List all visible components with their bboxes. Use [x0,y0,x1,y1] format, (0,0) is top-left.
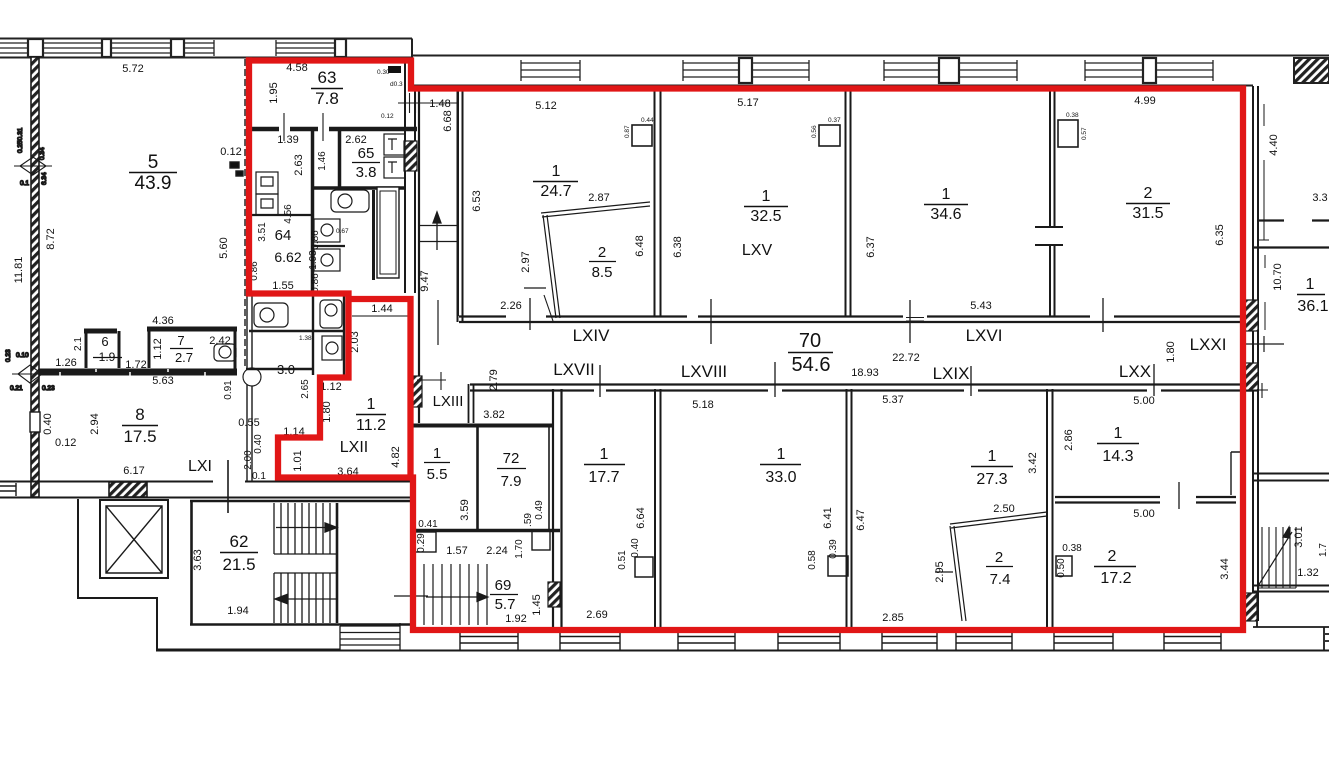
svg-text:5.00: 5.00 [1133,395,1154,407]
svg-text:0.21: 0.21 [10,385,23,392]
svg-text:3.44: 3.44 [1219,558,1231,579]
svg-text:24.7: 24.7 [540,183,571,200]
svg-text:1.80: 1.80 [1165,341,1177,362]
svg-text:4.82: 4.82 [390,446,402,467]
svg-text:4.40: 4.40 [1268,134,1280,155]
svg-text:14.3: 14.3 [1102,448,1133,465]
svg-text:2: 2 [1144,185,1153,202]
svg-text:7.8: 7.8 [315,89,339,108]
svg-text:2.85: 2.85 [882,612,903,624]
svg-text:1.55: 1.55 [272,280,293,292]
svg-text:0.67: 0.67 [336,228,349,235]
svg-text:1.72: 1.72 [125,359,146,371]
svg-text:0.250.31: 0.250.31 [17,127,24,153]
svg-text:.59: .59 [523,513,534,527]
svg-text:34.6: 34.6 [930,206,961,223]
svg-text:6.62: 6.62 [274,249,301,265]
svg-text:6.37: 6.37 [865,236,877,257]
svg-text:4.56: 4.56 [283,204,294,224]
svg-text:1: 1 [433,445,441,462]
svg-text:5.00: 5.00 [1133,508,1154,520]
svg-text:63: 63 [318,68,337,87]
svg-text:0.91: 0.91 [223,380,234,400]
svg-text:70: 70 [799,330,821,352]
svg-text:2.42: 2.42 [209,335,230,347]
svg-text:3.82: 3.82 [483,409,504,421]
svg-text:4.58: 4.58 [286,62,307,74]
svg-text:6.68: 6.68 [442,110,454,131]
svg-text:3.8: 3.8 [356,164,377,181]
svg-text:65: 65 [358,145,375,162]
svg-text:7: 7 [177,333,184,348]
svg-text:0.38: 0.38 [1066,112,1079,119]
svg-text:2: 2 [598,244,606,261]
svg-text:6.53: 6.53 [471,190,483,211]
svg-text:0.86: 0.86 [310,273,321,293]
svg-text:1.48: 1.48 [429,98,450,110]
svg-text:6.64: 6.64 [635,507,647,528]
svg-text:0.87: 0.87 [624,125,631,138]
svg-text:LXX: LXX [1119,362,1151,381]
svg-text:0.44: 0.44 [641,117,654,124]
svg-text:2.87: 2.87 [588,192,609,204]
svg-text:5.12: 5.12 [535,100,556,112]
svg-text:1.57: 1.57 [446,545,467,557]
svg-text:6.48: 6.48 [634,235,646,256]
svg-text:2.97: 2.97 [520,251,532,272]
svg-text:3.01: 3.01 [1293,526,1305,547]
svg-text:1.32: 1.32 [1297,567,1318,579]
svg-text:6.34: 6.34 [41,172,48,185]
svg-text:1: 1 [600,446,609,463]
svg-text:0.1: 0.1 [252,471,266,482]
svg-text:0.50: 0.50 [1056,558,1067,578]
svg-text:1: 1 [762,188,771,205]
svg-text:6.17: 6.17 [123,465,144,477]
svg-text:2.50: 2.50 [993,503,1014,515]
svg-text:2.95: 2.95 [934,561,946,582]
svg-text:11.81: 11.81 [13,257,25,284]
svg-text:10.70: 10.70 [1272,263,1284,291]
svg-text:LXI: LXI [188,458,212,475]
svg-text:1.92: 1.92 [505,613,526,625]
svg-text:54.6: 54.6 [792,354,831,376]
svg-text:0.58: 0.58 [807,550,818,570]
svg-text:5.17: 5.17 [737,97,758,109]
svg-text:2.63: 2.63 [293,154,305,175]
svg-text:0.40: 0.40 [253,434,264,454]
svg-text:1.95: 1.95 [268,82,280,103]
svg-text:2.1: 2.1 [73,337,84,351]
svg-text:0.41: 0.41 [418,519,438,530]
svg-text:LXV: LXV [742,242,773,259]
svg-text:2: 2 [1108,548,1117,565]
svg-text:3.51: 3.51 [257,222,268,242]
svg-text:1.44: 1.44 [371,303,392,315]
svg-text:1.70: 1.70 [514,539,525,559]
svg-text:2: 2 [995,549,1003,566]
svg-text:32.5: 32.5 [750,208,781,225]
svg-text:11.2: 11.2 [356,417,386,434]
svg-text:d0.3: d0.3 [390,81,403,88]
svg-text:7.9: 7.9 [501,473,522,490]
svg-text:3.3: 3.3 [1312,192,1327,204]
svg-text:5.63: 5.63 [152,375,173,387]
svg-text:2.79: 2.79 [488,369,500,390]
svg-text:2.7: 2.7 [175,350,193,365]
svg-text:3.42: 3.42 [1027,452,1039,473]
svg-text:0.1: 0.1 [20,180,29,187]
svg-text:0.10: 0.10 [16,352,29,359]
svg-text:0.37: 0.37 [828,117,841,124]
svg-text:0.86: 0.86 [310,230,321,250]
svg-text:0.12: 0.12 [220,146,241,158]
svg-text:1.93: 1.93 [308,250,319,270]
svg-text:17.5: 17.5 [123,427,156,446]
svg-text:18.93: 18.93 [851,367,879,379]
svg-text:2.24: 2.24 [486,545,507,557]
svg-text:LXII: LXII [340,439,368,456]
svg-text:3.63: 3.63 [192,549,204,570]
svg-text:5: 5 [148,152,159,173]
svg-text:0.23: 0.23 [5,349,12,362]
svg-text:33.0: 33.0 [765,469,796,486]
svg-text:2.86: 2.86 [1063,429,1075,450]
svg-text:0.12: 0.12 [55,437,76,449]
svg-text:1: 1 [552,163,561,180]
svg-text:LXIX: LXIX [933,364,970,383]
svg-text:4.36: 4.36 [152,315,173,327]
svg-text:0.49: 0.49 [534,500,545,520]
svg-text:21.5: 21.5 [222,555,255,574]
svg-text:8.72: 8.72 [45,228,57,249]
svg-text:1: 1 [988,448,997,465]
svg-text:43.9: 43.9 [135,173,172,194]
svg-text:64: 64 [275,227,292,244]
svg-text:1.7: 1.7 [1318,543,1329,557]
svg-text:8.5: 8.5 [592,264,613,281]
svg-text:1.39: 1.39 [277,134,298,146]
svg-text:0.38: 0.38 [1062,543,1082,554]
svg-text:1.45: 1.45 [531,594,543,615]
svg-text:LXIV: LXIV [573,326,611,345]
svg-text:1.01: 1.01 [292,450,304,471]
svg-text:5.37: 5.37 [882,394,903,406]
svg-text:2.26: 2.26 [500,300,521,312]
svg-text:2.65: 2.65 [300,379,311,399]
svg-text:1: 1 [1114,425,1123,442]
svg-text:0.56: 0.56 [811,125,818,138]
svg-text:2.94: 2.94 [89,413,101,434]
svg-text:72: 72 [503,450,520,467]
svg-text:1.46: 1.46 [317,151,328,171]
svg-text:LXVIII: LXVIII [681,362,727,381]
svg-text:1.12: 1.12 [320,381,341,393]
svg-text:0.39: 0.39 [828,539,839,559]
svg-text:7.4: 7.4 [990,571,1011,588]
svg-text:1.26: 1.26 [55,357,76,369]
svg-text:31.5: 31.5 [1132,205,1163,222]
svg-text:22.72: 22.72 [892,352,920,364]
svg-text:6: 6 [101,334,108,349]
svg-text:0.57: 0.57 [1081,127,1088,140]
svg-text:0.40: 0.40 [42,413,54,434]
svg-text:1: 1 [942,186,951,203]
svg-text:0.12: 0.12 [381,113,394,120]
svg-text:9.47: 9.47 [419,270,431,291]
svg-text:17.2: 17.2 [1100,570,1131,587]
svg-text:36.1: 36.1 [1297,298,1328,315]
svg-text:5.18: 5.18 [692,399,713,411]
svg-text:3.59: 3.59 [459,499,471,520]
svg-text:8: 8 [135,405,144,424]
svg-text:1: 1 [367,396,376,413]
svg-text:6.41: 6.41 [822,507,834,528]
svg-text:69: 69 [495,577,512,594]
svg-text:6.47: 6.47 [855,509,867,530]
svg-text:LXXI: LXXI [1190,335,1227,354]
svg-text:0.55: 0.55 [238,417,259,429]
svg-text:0.29: 0.29 [416,533,427,553]
svg-text:0.40: 0.40 [630,538,641,558]
svg-text:5.72: 5.72 [122,63,143,75]
svg-text:4.99: 4.99 [1134,95,1155,107]
svg-text:5.5: 5.5 [427,466,448,483]
svg-text:5.60: 5.60 [218,237,230,258]
svg-text:2.69: 2.69 [586,609,607,621]
svg-text:LXVI: LXVI [966,326,1003,345]
svg-text:2.00: 2.00 [243,450,254,470]
svg-text:1.94: 1.94 [227,605,248,617]
svg-text:0.51: 0.51 [617,550,628,570]
svg-text:6.35: 6.35 [1214,224,1226,245]
svg-text:0.23: 0.23 [42,385,55,392]
svg-text:6.38: 6.38 [672,236,684,257]
svg-text:1: 1 [777,446,786,463]
svg-text:1.12: 1.12 [152,338,164,359]
svg-text:LXIII: LXIII [433,393,464,410]
svg-text:17.7: 17.7 [588,469,619,486]
svg-text:LXVII: LXVII [553,360,595,379]
svg-text:1: 1 [1306,276,1315,293]
svg-text:1.38: 1.38 [299,335,312,342]
svg-text:62: 62 [230,532,249,551]
svg-text:5.43: 5.43 [970,300,991,312]
svg-text:0.34: 0.34 [39,147,46,160]
svg-text:5.7: 5.7 [495,596,516,613]
svg-text:3.0: 3.0 [277,362,295,377]
svg-text:27.3: 27.3 [976,471,1007,488]
